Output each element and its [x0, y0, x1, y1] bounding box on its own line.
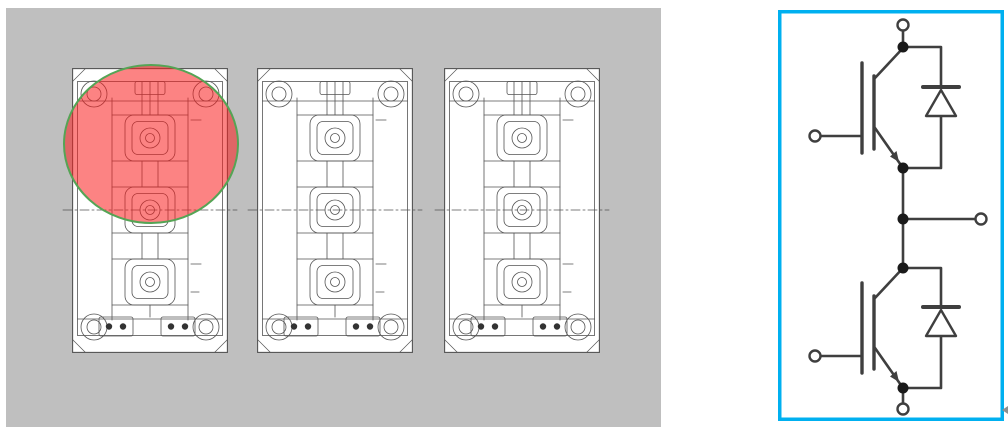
lower-emitter-node [898, 383, 909, 394]
dc-plus-terminal [898, 20, 909, 31]
igbt-module-drawing-3 [435, 69, 609, 353]
module-panel [6, 8, 661, 427]
highlight-ellipse [64, 65, 238, 223]
upper-gate-terminal [810, 131, 821, 142]
lower-collector-node [898, 263, 909, 274]
upper-emitter-node [898, 163, 909, 174]
lower-gate-terminal [810, 351, 821, 362]
stray-mark-shape [1002, 406, 1008, 414]
stray-mark [1000, 404, 1008, 416]
midpoint-node [898, 214, 909, 225]
igbt-module-drawing-2 [248, 69, 422, 353]
circuit-panel [778, 10, 1004, 421]
dc-minus-terminal [898, 404, 909, 415]
upper-collector-node [898, 42, 909, 53]
phase-output-terminal [976, 214, 987, 225]
